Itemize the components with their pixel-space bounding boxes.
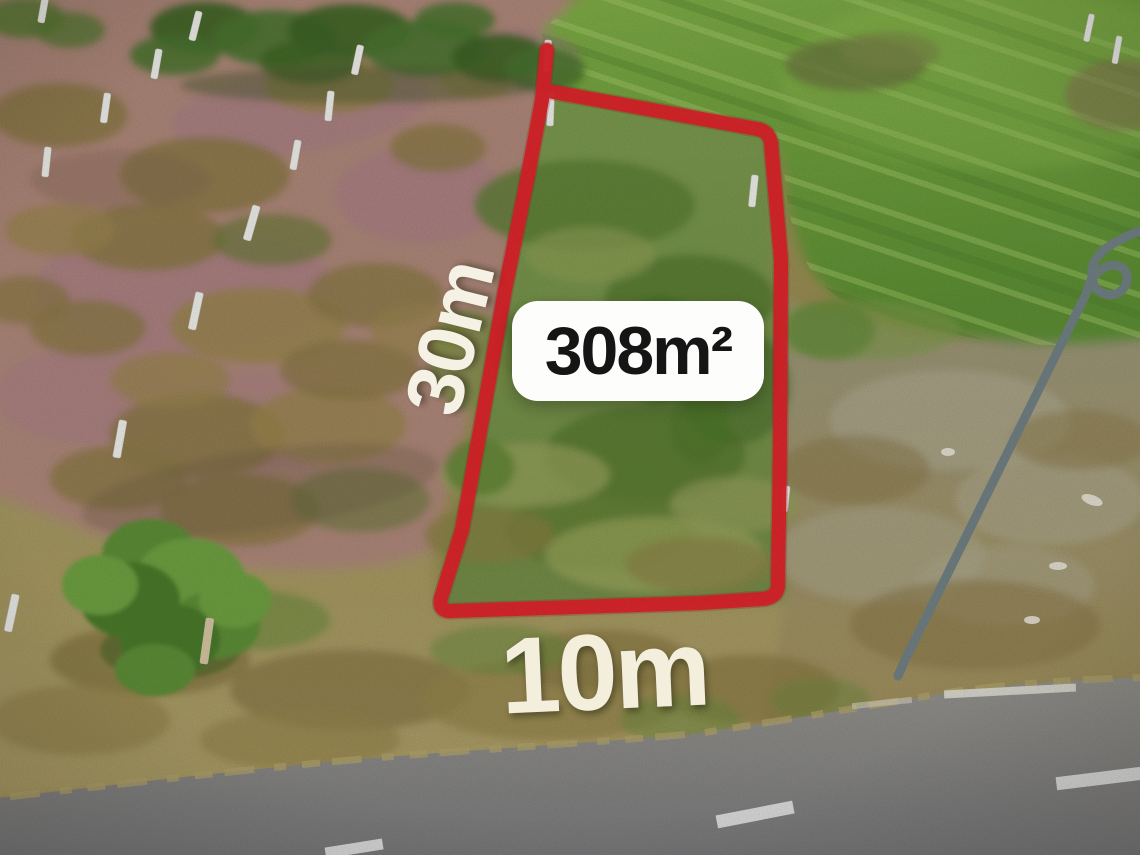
frontage-label: 10m <box>498 614 710 731</box>
aerial-photo: 30m 308m² 10m <box>0 0 1140 855</box>
area-badge: 308m² <box>512 301 764 401</box>
area-label: 308m² <box>545 312 732 390</box>
